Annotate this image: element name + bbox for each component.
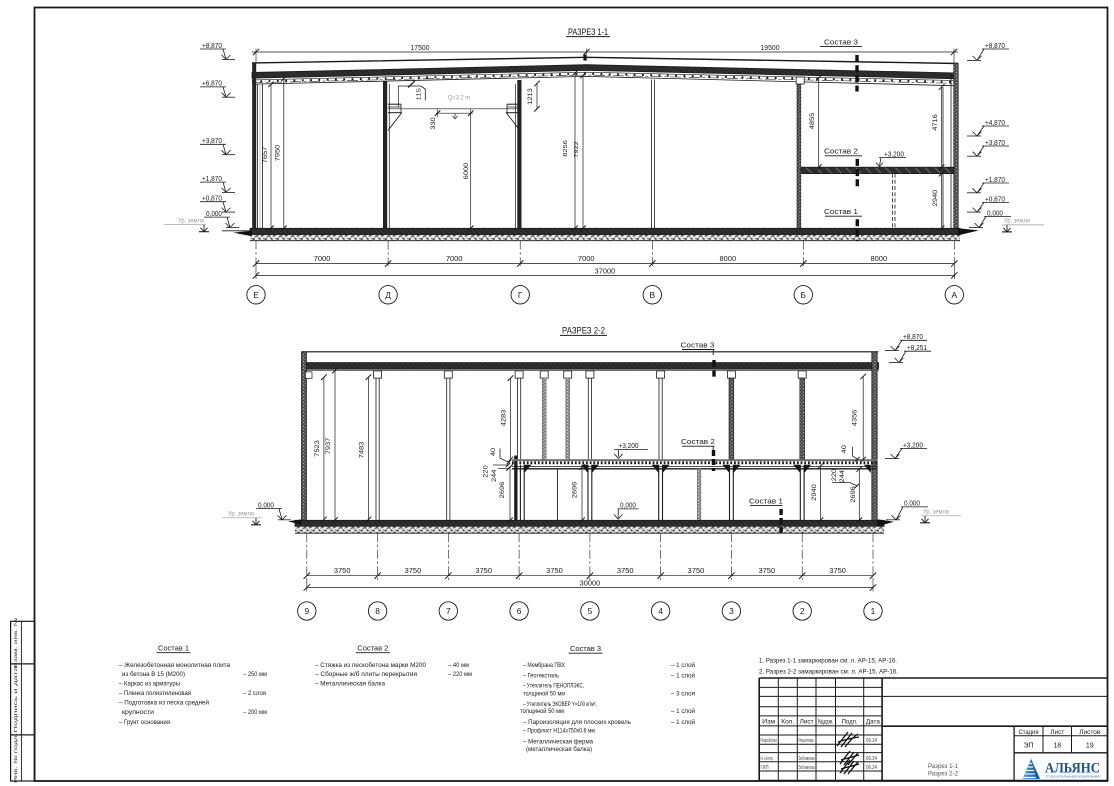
svg-text:7: 7	[446, 606, 451, 616]
svg-text:244: 244	[839, 469, 846, 482]
svg-text:крупности: крупности	[122, 709, 154, 716]
svg-text:Взам. инв. №: Взам. инв. №	[13, 618, 18, 668]
svg-text:РАЗРЕЗ 2-2: РАЗРЕЗ 2-2	[562, 325, 605, 336]
svg-text:– 1 слой: – 1 слой	[671, 672, 695, 680]
svg-text:7657: 7657	[262, 146, 269, 163]
svg-text:0,000: 0,000	[620, 503, 636, 510]
svg-text:– Сборные ж/б плиты перекрытия: – Сборные ж/б плиты перекрытия	[315, 670, 417, 678]
svg-text:– 200 мм: – 200 мм	[243, 709, 267, 716]
svg-text:Ур. земли: Ур. земли	[178, 217, 205, 224]
svg-text:06.24: 06.24	[866, 756, 877, 762]
svg-text:Разрез 2-2: Разрез 2-2	[928, 772, 959, 778]
svg-text:– Металлическая балка: – Металлическая балка	[315, 680, 385, 688]
svg-text:Разрез 1-1: Разрез 1-1	[928, 764, 959, 770]
svg-text:Состав 2: Состав 2	[824, 147, 858, 156]
svg-text:4716: 4716	[932, 114, 939, 131]
svg-text:Зобнинова: Зобнинова	[799, 756, 815, 762]
svg-text:– 3 слоя: – 3 слоя	[671, 690, 695, 697]
svg-text:330: 330	[430, 117, 437, 130]
svg-text:Состав 1: Состав 1	[158, 644, 189, 653]
svg-text:2696: 2696	[572, 481, 579, 498]
svg-text:– 220 мм: – 220 мм	[448, 671, 472, 678]
svg-text:Кол.: Кол.	[781, 719, 794, 726]
svg-text:– Геотекстиль: – Геотекстиль	[523, 673, 559, 680]
svg-text:2. Разрез 2-2 замаркирован см.: 2. Разрез 2-2 замаркирован см. л. АР-15,…	[759, 669, 898, 676]
svg-text:2940: 2940	[811, 484, 818, 501]
svg-text:толщиной 50 мм: толщиной 50 мм	[520, 707, 564, 715]
svg-text:– Профлист Н114х750х0.8 мм: – Профлист Н114х750х0.8 мм	[523, 728, 595, 735]
svg-text:40: 40	[841, 444, 848, 453]
svg-text:– Пароизоляция для плоских кро: – Пароизоляция для плоских кровель	[523, 719, 632, 726]
svg-text:244: 244	[491, 469, 498, 482]
svg-text:Состав 2: Состав 2	[681, 437, 715, 446]
svg-text:Лист: Лист	[800, 719, 814, 726]
svg-text:Состав 1: Состав 1	[824, 207, 858, 216]
svg-text:115: 115	[417, 88, 423, 100]
svg-text:Решетова: Решетова	[799, 738, 815, 744]
svg-text:Разработал: Разработал	[761, 738, 778, 744]
svg-text:37000: 37000	[595, 266, 616, 275]
svg-text:3750: 3750	[405, 566, 422, 575]
svg-text:Дата: Дата	[866, 719, 881, 726]
svg-text:3750: 3750	[688, 566, 705, 575]
svg-text:06.24: 06.24	[866, 738, 877, 744]
svg-text:Лист: Лист	[1050, 729, 1064, 736]
svg-text:Зобнинова: Зобнинова	[799, 765, 815, 771]
svg-text:– Стяжка из пескобетона марки: – Стяжка из пескобетона марки М200	[315, 661, 426, 669]
svg-text:19500: 19500	[761, 43, 780, 52]
svg-text:Д: Д	[385, 290, 391, 300]
svg-text:06.24: 06.24	[866, 765, 877, 771]
svg-text:– Каркас из арматуры: – Каркас из арматуры	[119, 681, 180, 688]
svg-text:Ур. земли: Ур. земли	[923, 508, 950, 515]
svg-text:ГИП: ГИП	[761, 765, 769, 771]
svg-text:6000: 6000	[463, 162, 470, 179]
svg-text:3750: 3750	[334, 566, 351, 575]
svg-text:Инв. № подл.: Инв. № подл.	[13, 733, 18, 783]
svg-text:В: В	[650, 290, 656, 300]
svg-text:– 40 мм: – 40 мм	[448, 662, 469, 669]
svg-text:Н. контр.: Н. контр.	[761, 756, 774, 762]
svg-text:Q=3.2 m: Q=3.2 m	[448, 95, 470, 102]
svg-text:7000: 7000	[314, 254, 331, 263]
svg-text:Состав 1: Состав 1	[749, 497, 783, 506]
svg-text:7000: 7000	[446, 254, 463, 263]
svg-text:30000: 30000	[580, 579, 601, 588]
svg-text:– Металлическая ферма: – Металлическая ферма	[523, 738, 593, 745]
svg-text:– 250 мм: – 250 мм	[243, 671, 267, 678]
svg-text:5: 5	[588, 606, 593, 616]
svg-text:40: 40	[490, 447, 497, 456]
svg-text:Ур. земли: Ур. земли	[228, 511, 255, 518]
svg-text:(металлическая балка): (металлическая балка)	[526, 745, 592, 753]
svg-text:2: 2	[800, 606, 805, 616]
svg-text:18: 18	[1053, 743, 1061, 750]
svg-text:2696: 2696	[850, 486, 857, 503]
svg-text:19: 19	[1086, 743, 1094, 750]
svg-text:6: 6	[517, 606, 522, 616]
svg-text:4283: 4283	[501, 409, 508, 426]
svg-text:17500: 17500	[411, 43, 430, 52]
svg-text:– 1 слой: – 1 слой	[671, 718, 695, 726]
svg-text:Ур. земли: Ур. земли	[1004, 218, 1031, 225]
svg-text:Состав 3: Состав 3	[824, 37, 858, 46]
svg-text:Г: Г	[518, 290, 523, 300]
svg-text:Подпись и дата: Подпись и дата	[13, 665, 18, 732]
svg-text:4855: 4855	[809, 112, 816, 129]
svg-text:7937: 7937	[325, 437, 332, 454]
svg-text:3750: 3750	[829, 566, 846, 575]
svg-text:9: 9	[304, 606, 309, 616]
svg-text:– Пленка полиэтиленовая: – Пленка полиэтиленовая	[119, 690, 191, 697]
svg-text:– 1 слой: – 1 слой	[671, 661, 695, 669]
svg-text:3750: 3750	[546, 566, 563, 575]
svg-text:3: 3	[729, 606, 734, 616]
svg-text:Листов: Листов	[1079, 729, 1101, 736]
svg-text:Стадия: Стадия	[1019, 729, 1039, 736]
svg-text:7483: 7483	[358, 441, 365, 458]
svg-text:3750: 3750	[475, 566, 492, 575]
svg-text:8000: 8000	[871, 254, 888, 263]
svg-text:А: А	[952, 290, 958, 300]
svg-text:– 2 слоя: – 2 слоя	[243, 690, 266, 697]
svg-text:строительная компания: строительная компания	[1046, 775, 1100, 779]
svg-text:8000: 8000	[720, 254, 737, 263]
svg-text:2940: 2940	[932, 189, 939, 206]
svg-text:Изм: Изм	[762, 719, 775, 726]
svg-text:ЭП: ЭП	[1023, 743, 1033, 750]
svg-text:7000: 7000	[578, 254, 595, 263]
svg-text:РАЗРЕЗ 1-1: РАЗРЕЗ 1-1	[568, 26, 608, 37]
svg-text:– Утеплитель ПЕНОПЛЭКС,: – Утеплитель ПЕНОПЛЭКС,	[523, 682, 584, 689]
svg-text:толщиной 50 мм: толщиной 50 мм	[523, 689, 565, 697]
svg-text:3750: 3750	[617, 566, 634, 575]
svg-text:7950: 7950	[274, 144, 281, 161]
svg-text:Подп.: Подп.	[842, 719, 858, 726]
svg-text:Состав 3: Состав 3	[570, 644, 601, 653]
svg-text:7922: 7922	[574, 141, 580, 158]
svg-text:Состав 2: Состав 2	[357, 644, 388, 653]
svg-text:– Подготовка из песка средней: – Подготовка из песка средней	[119, 699, 209, 707]
svg-text:4356: 4356	[852, 409, 859, 426]
svg-text:1213: 1213	[527, 88, 534, 105]
svg-text:– Грунт основания: – Грунт основания	[119, 719, 170, 726]
svg-text:Б: Б	[801, 290, 807, 300]
svg-text:4: 4	[658, 606, 663, 616]
svg-text:– Мембрана ПВХ: – Мембрана ПВХ	[523, 661, 565, 669]
svg-text:1: 1	[871, 606, 876, 616]
svg-text:1. Разрез 1-1 замаркирован см.: 1. Разрез 1-1 замаркирован см. л. АР-15,…	[759, 658, 897, 665]
svg-text:№док.: №док.	[818, 719, 834, 726]
svg-text:2696: 2696	[499, 481, 506, 498]
svg-text:– Утеплитель ЭКОВЕР Y=100 кг/м: – Утеплитель ЭКОВЕР Y=100 кг/м²,	[523, 701, 597, 708]
svg-text:из бетона В 15 (М200): из бетона В 15 (М200)	[122, 670, 185, 678]
svg-text:Е: Е	[253, 290, 259, 300]
svg-text:8: 8	[375, 606, 380, 616]
svg-text:3750: 3750	[759, 566, 776, 575]
svg-text:220: 220	[831, 468, 838, 481]
svg-text:220: 220	[483, 465, 490, 478]
svg-text:8256: 8256	[563, 140, 569, 157]
svg-text:– Железобетонная монолитная п: – Железобетонная монолитная плита	[119, 661, 230, 669]
svg-text:– 1 слой: – 1 слой	[671, 707, 695, 715]
svg-text:7523: 7523	[314, 440, 321, 457]
svg-text:Состав 3: Состав 3	[681, 341, 715, 350]
